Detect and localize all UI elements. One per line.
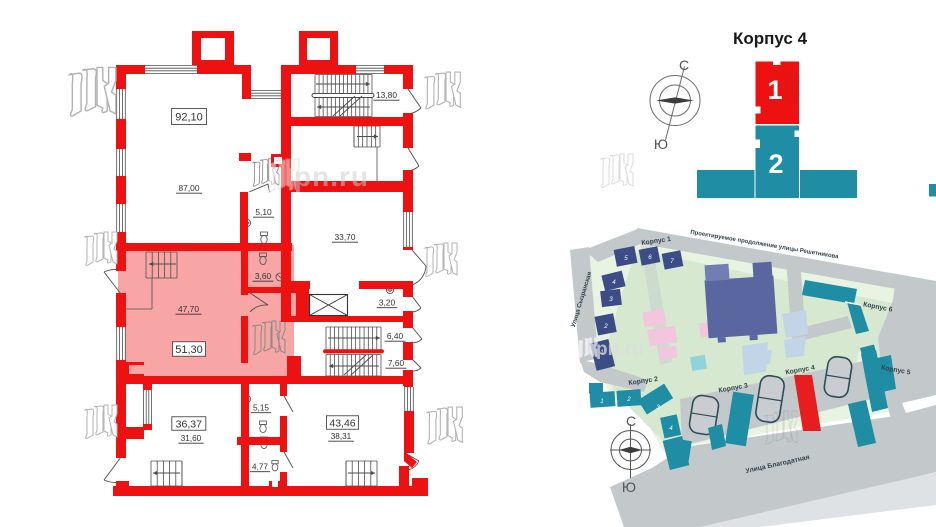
svg-text:13,80: 13,80 (376, 90, 397, 100)
svg-text:7: 7 (670, 258, 674, 265)
svg-text:87,00: 87,00 (179, 183, 200, 193)
svg-text:5,15: 5,15 (253, 404, 269, 413)
svg-text:1: 1 (767, 75, 782, 105)
svg-text:47,70: 47,70 (178, 304, 199, 314)
svg-text:31,60: 31,60 (181, 434, 202, 443)
svg-text:4: 4 (612, 279, 616, 286)
svg-text:2: 2 (603, 323, 608, 330)
svg-text:pn.ru: pn.ru (294, 161, 369, 192)
svg-text:6: 6 (648, 254, 652, 261)
svg-text:Ю: Ю (622, 479, 636, 495)
svg-text:С: С (679, 57, 689, 73)
svg-text:38,31: 38,31 (331, 432, 352, 441)
svg-text:33,70: 33,70 (335, 232, 356, 242)
svg-text:3,20: 3,20 (379, 298, 396, 308)
svg-text:Корпус 4: Корпус 4 (733, 29, 808, 48)
svg-text:4,77: 4,77 (252, 463, 268, 472)
svg-text:2: 2 (768, 149, 783, 179)
svg-text:43,46: 43,46 (329, 417, 355, 429)
svg-text:51,30: 51,30 (175, 344, 203, 356)
svg-text:1: 1 (600, 398, 603, 405)
svg-text:5,10: 5,10 (255, 207, 272, 217)
svg-text:5: 5 (624, 255, 628, 262)
svg-text:С: С (626, 413, 636, 429)
svg-text:36,37: 36,37 (176, 418, 202, 430)
svg-text:6,40: 6,40 (387, 331, 404, 341)
svg-text:Ю: Ю (654, 136, 668, 152)
svg-text:3: 3 (656, 404, 660, 411)
svg-text:3,60: 3,60 (255, 271, 272, 281)
svg-text:4: 4 (669, 425, 673, 432)
svg-text:2: 2 (626, 396, 631, 403)
svg-text:3: 3 (609, 296, 613, 303)
svg-text:92,10: 92,10 (175, 111, 203, 123)
svg-text:pn.ru: pn.ru (596, 339, 644, 360)
svg-text:7,60: 7,60 (388, 358, 405, 368)
